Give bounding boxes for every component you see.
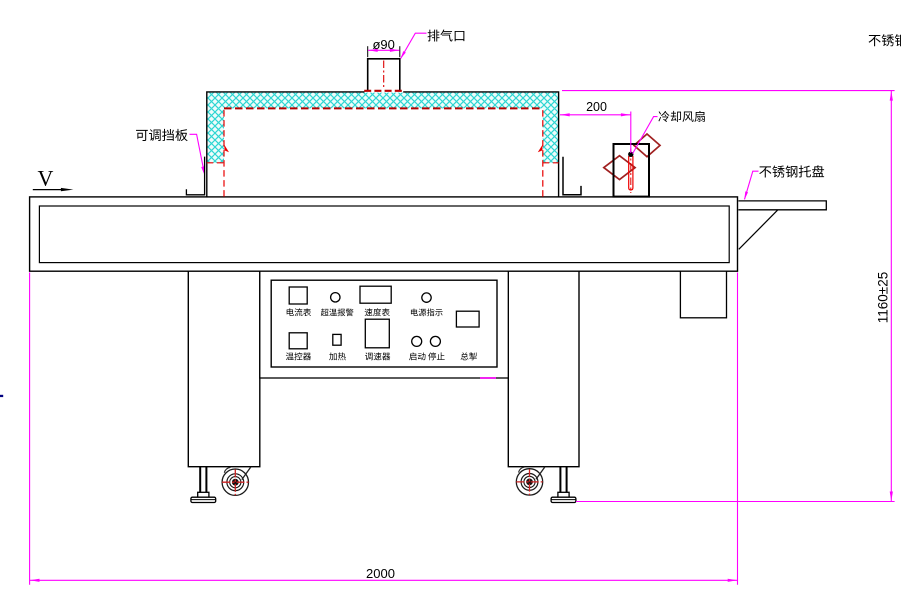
svg-text:2000: 2000	[366, 566, 395, 581]
svg-text:1160±25: 1160±25	[876, 272, 891, 323]
svg-text:200: 200	[586, 100, 607, 114]
svg-text:ø90: ø90	[372, 37, 394, 52]
svg-text:V: V	[38, 165, 54, 190]
